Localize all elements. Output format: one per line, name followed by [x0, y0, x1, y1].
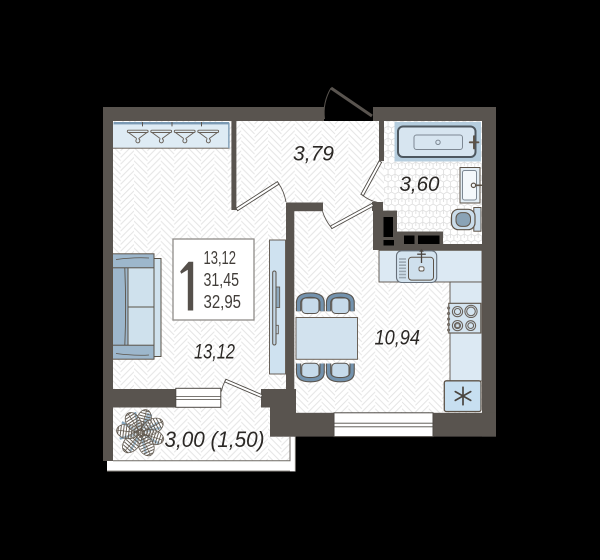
svg-text:32,95: 32,95 — [204, 292, 242, 312]
svg-text:10,94: 10,94 — [375, 326, 421, 350]
svg-text:13,12: 13,12 — [194, 339, 235, 363]
svg-text:13,12: 13,12 — [204, 248, 237, 268]
svg-text:3,00 (1,50): 3,00 (1,50) — [165, 427, 265, 452]
svg-text:3,60: 3,60 — [400, 172, 440, 196]
svg-text:3,79: 3,79 — [293, 141, 334, 165]
svg-text:31,45: 31,45 — [204, 270, 240, 290]
